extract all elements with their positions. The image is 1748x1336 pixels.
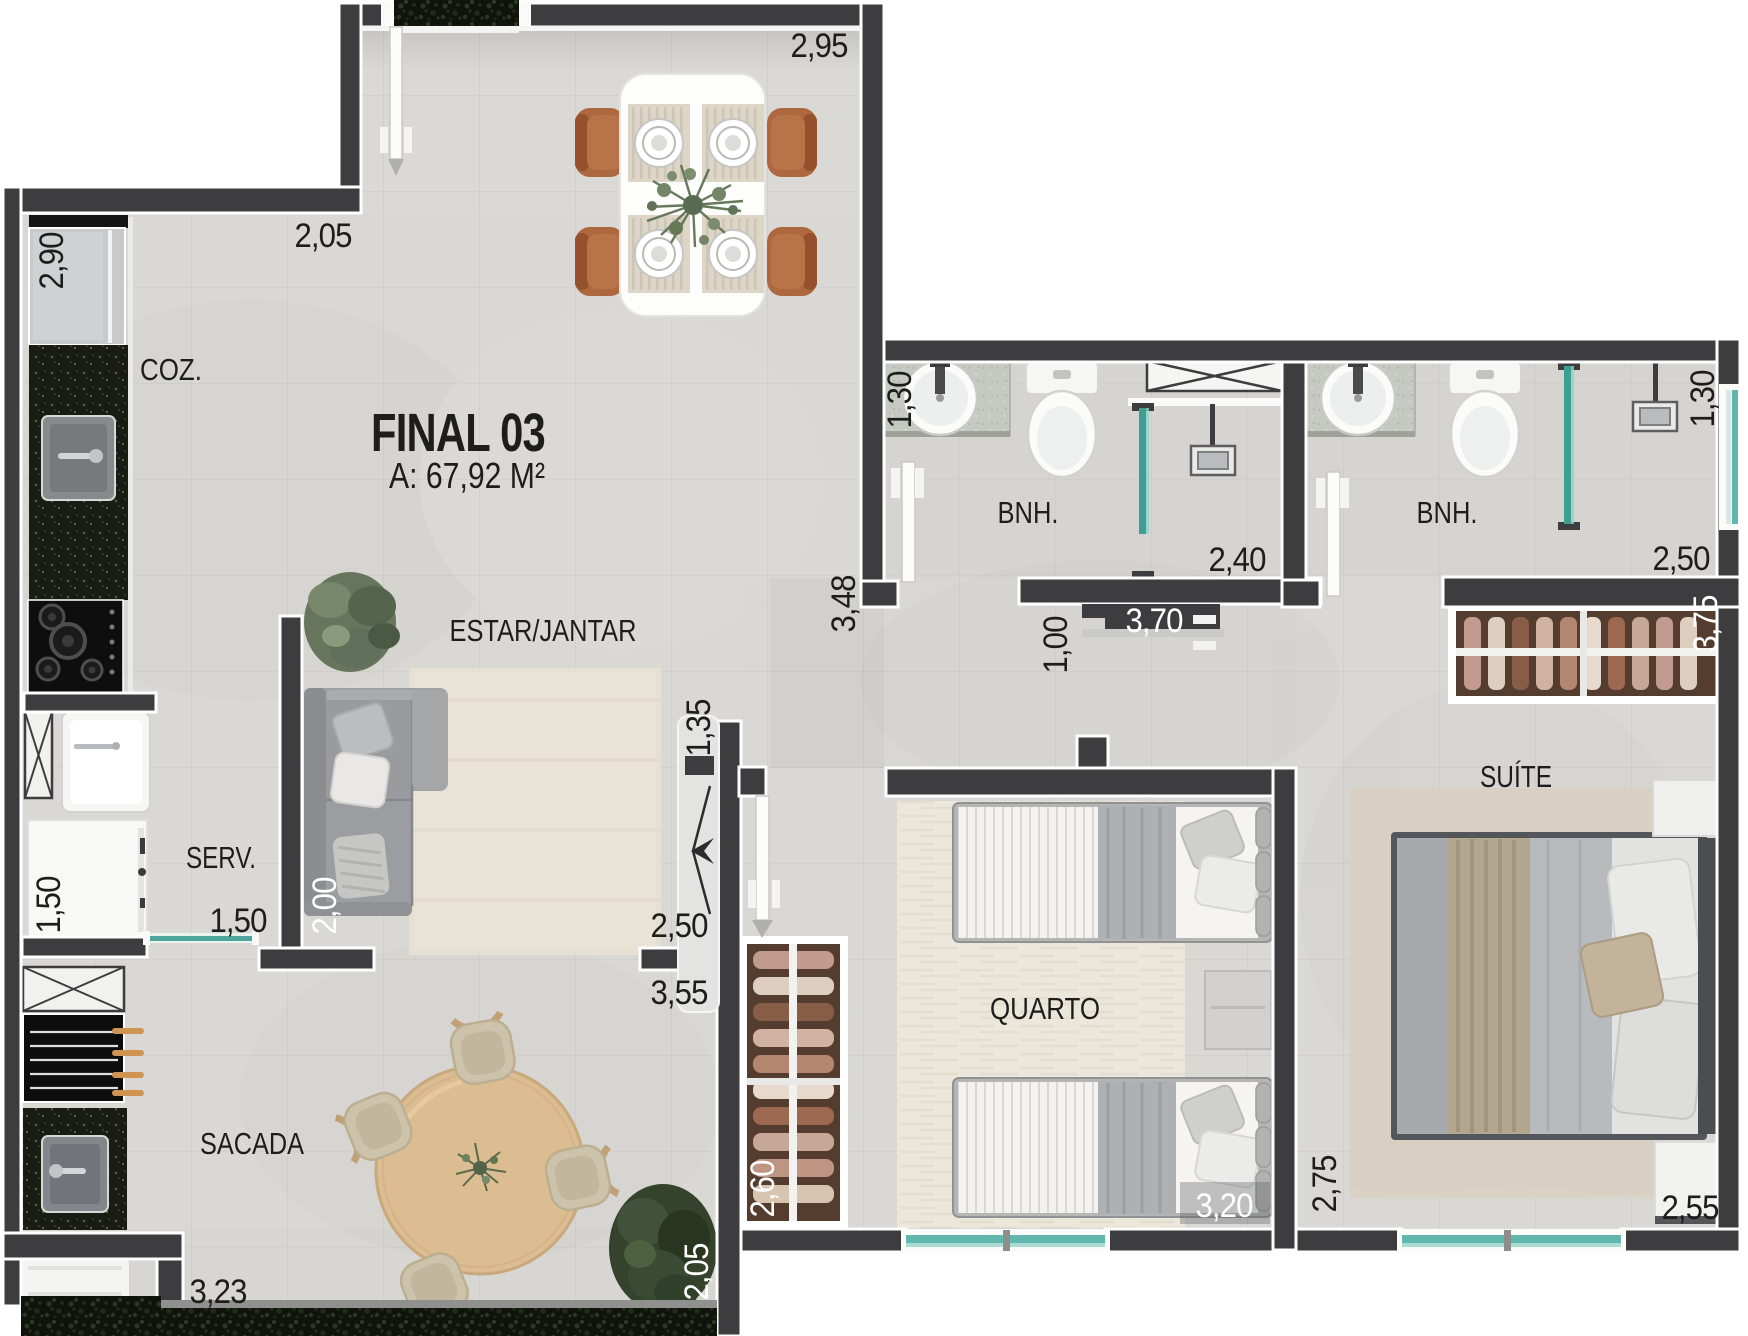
svg-text:A: 67,92 M²: A: 67,92 M² bbox=[389, 455, 545, 496]
svg-text:2,05: 2,05 bbox=[678, 1243, 716, 1300]
svg-text:2,50: 2,50 bbox=[651, 907, 708, 945]
svg-text:2,55: 2,55 bbox=[1662, 1189, 1719, 1227]
svg-text:COZ.: COZ. bbox=[140, 352, 202, 387]
svg-text:SUÍTE: SUÍTE bbox=[1480, 759, 1552, 794]
svg-text:2,60: 2,60 bbox=[744, 1160, 782, 1217]
svg-text:2,00: 2,00 bbox=[306, 877, 344, 934]
svg-text:3,70: 3,70 bbox=[1126, 602, 1183, 640]
svg-text:3,23: 3,23 bbox=[190, 1273, 247, 1311]
svg-text:2,75: 2,75 bbox=[1306, 1155, 1344, 1212]
svg-text:FINAL 03: FINAL 03 bbox=[371, 403, 545, 463]
svg-text:1,30: 1,30 bbox=[1684, 370, 1722, 427]
svg-text:1,00: 1,00 bbox=[1037, 616, 1075, 673]
svg-text:1,35: 1,35 bbox=[680, 699, 718, 756]
svg-text:3,20: 3,20 bbox=[1196, 1187, 1253, 1225]
svg-text:3,48: 3,48 bbox=[825, 575, 863, 632]
svg-text:2,95: 2,95 bbox=[791, 27, 848, 65]
svg-text:BNH.: BNH. bbox=[998, 495, 1059, 530]
svg-text:3,75: 3,75 bbox=[1687, 595, 1725, 652]
svg-text:QUARTO: QUARTO bbox=[990, 991, 1100, 1026]
svg-text:1,50: 1,50 bbox=[210, 902, 267, 940]
svg-text:2,40: 2,40 bbox=[1209, 541, 1266, 579]
svg-text:3,55: 3,55 bbox=[651, 974, 708, 1012]
svg-text:BNH.: BNH. bbox=[1417, 495, 1478, 530]
svg-text:1,30: 1,30 bbox=[881, 371, 919, 428]
svg-text:2,90: 2,90 bbox=[33, 232, 71, 289]
svg-text:2,50: 2,50 bbox=[1653, 540, 1710, 578]
svg-text:2,05: 2,05 bbox=[295, 217, 352, 255]
svg-text:SACADA: SACADA bbox=[200, 1126, 304, 1161]
svg-text:1,50: 1,50 bbox=[30, 876, 68, 933]
svg-text:SERV.: SERV. bbox=[186, 840, 256, 875]
svg-text:ESTAR/JANTAR: ESTAR/JANTAR bbox=[450, 613, 637, 648]
